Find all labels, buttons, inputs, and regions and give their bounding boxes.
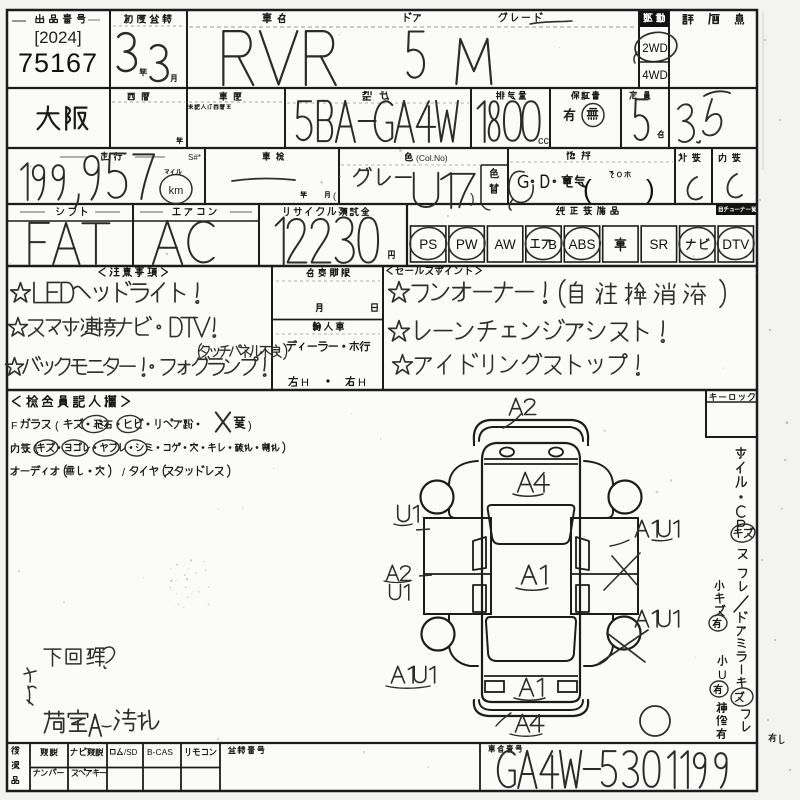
svg-text:AW: AW	[494, 237, 516, 252]
svg-text:PS: PS	[419, 237, 437, 252]
svg-text:H: H	[358, 377, 366, 389]
svg-text:): )	[248, 420, 252, 432]
svg-text:DTV: DTV	[722, 237, 749, 252]
svg-text:U: U	[718, 668, 727, 682]
svg-text:(: (	[333, 191, 336, 201]
svg-text:F: F	[11, 420, 17, 432]
svg-text:(Col.No): (Col.No)	[416, 153, 448, 163]
svg-text:75167: 75167	[18, 48, 98, 78]
svg-text:km: km	[169, 185, 184, 197]
svg-text:2WD: 2WD	[642, 43, 668, 55]
svg-text:B: B	[548, 237, 557, 252]
svg-text:SR: SR	[650, 237, 669, 252]
svg-text:H: H	[301, 377, 309, 389]
svg-text:/SD: /SD	[124, 748, 138, 757]
svg-text:B-CAS: B-CAS	[147, 747, 173, 757]
svg-text:[2024]: [2024]	[34, 28, 81, 47]
svg-text:cc: cc	[538, 135, 550, 147]
svg-text:(: (	[583, 174, 592, 204]
svg-text:): )	[646, 174, 655, 204]
svg-text:4WD: 4WD	[642, 70, 668, 82]
svg-text:S#*: S#*	[188, 153, 201, 162]
svg-text:(: (	[55, 420, 59, 432]
svg-text:ABS: ABS	[568, 237, 595, 252]
svg-text:PW: PW	[456, 237, 478, 252]
svg-text:): )	[470, 190, 475, 206]
